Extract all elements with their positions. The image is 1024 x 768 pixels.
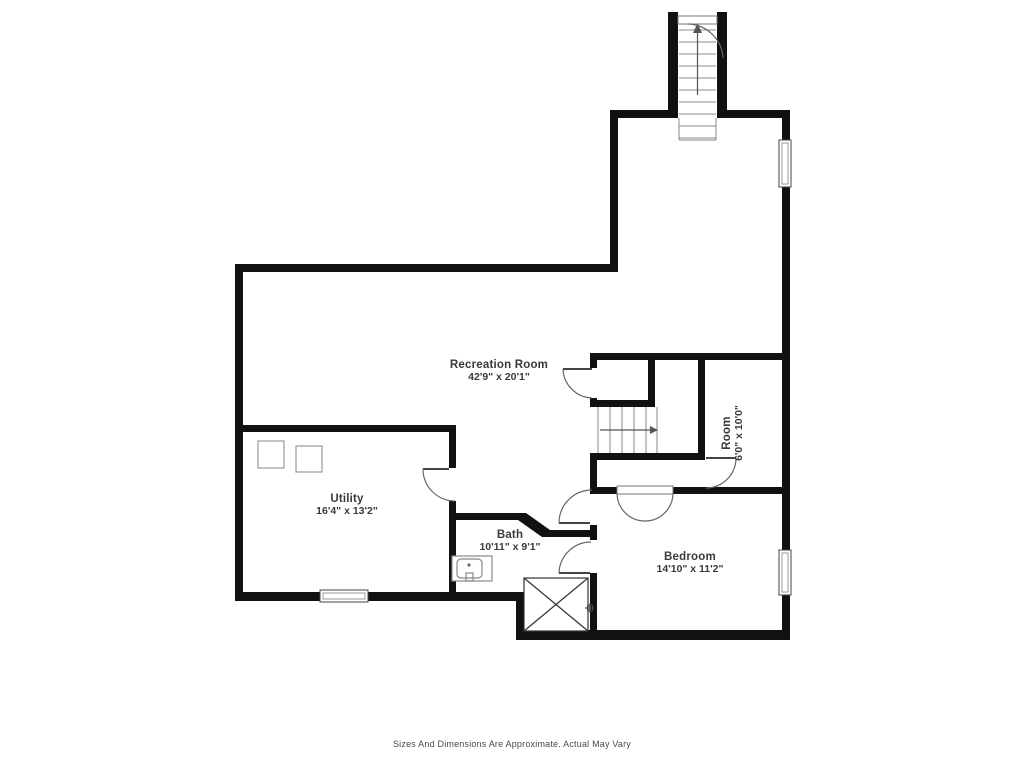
- wall-right-a: [782, 110, 790, 141]
- stairs-up-arrow-east: [600, 426, 658, 434]
- wall-bedroom-top-east: [673, 487, 705, 494]
- walls: [235, 12, 790, 640]
- wall-room-west: [698, 353, 705, 457]
- appliance-icon-1: [258, 441, 284, 468]
- wall-utility-top: [243, 425, 456, 432]
- stairs-up-arrow-north: [693, 23, 702, 95]
- sink-icon: [452, 556, 492, 581]
- bedroom-french-doors: [617, 486, 673, 521]
- wall-bath-top-east: [544, 530, 597, 537]
- wall-bottom-west-a: [235, 592, 321, 601]
- bedroom-west-door: [559, 490, 592, 523]
- wall-center-b: [590, 525, 597, 540]
- appliance-icon-2: [296, 446, 322, 472]
- window-rec-room-east: [779, 140, 791, 187]
- wall-stairwell-right: [717, 12, 727, 118]
- wall-middle-north: [590, 353, 790, 360]
- wall-bath-top-west: [449, 513, 522, 520]
- floor-plan-page: Recreation Room 42'9" x 20'1" Utility 16…: [0, 0, 1024, 768]
- wall-right-b: [782, 186, 790, 551]
- window-utility-south: [320, 590, 368, 602]
- wall-closet-west-a: [590, 353, 597, 368]
- utility-appliance-icons: [258, 441, 322, 472]
- wall-bottom-west-b: [367, 592, 525, 601]
- wall-center-c: [590, 573, 597, 632]
- floor-plan-canvas: [0, 0, 1024, 768]
- closet-door: [563, 369, 592, 398]
- stairwell-top-door: [678, 16, 723, 58]
- stairwell-door-leaf: [678, 16, 717, 24]
- wall-utility-east-a: [449, 425, 456, 468]
- wall-room-south: [705, 487, 790, 494]
- doors: [423, 369, 736, 573]
- disclaimer-text: Sizes And Dimensions Are Approximate. Ac…: [0, 739, 1024, 749]
- wall-closet-south: [590, 400, 655, 407]
- wall-closet-east: [648, 353, 655, 407]
- bath-door: [559, 542, 591, 573]
- wall-left: [235, 264, 243, 601]
- wall-corridor-north: [590, 453, 705, 460]
- utility-door: [423, 469, 455, 501]
- wall-bedroom-top-west: [590, 487, 617, 494]
- wall-top-east-of-stairwell: [725, 110, 790, 118]
- wall-top-west-of-stairwell: [610, 110, 670, 118]
- wall-upper-left: [610, 110, 618, 272]
- shower-icon: [524, 578, 588, 631]
- room-door: [706, 458, 736, 488]
- wall-main-top: [235, 264, 618, 272]
- window-bedroom-east: [779, 550, 791, 595]
- wall-stairwell-left: [668, 12, 678, 118]
